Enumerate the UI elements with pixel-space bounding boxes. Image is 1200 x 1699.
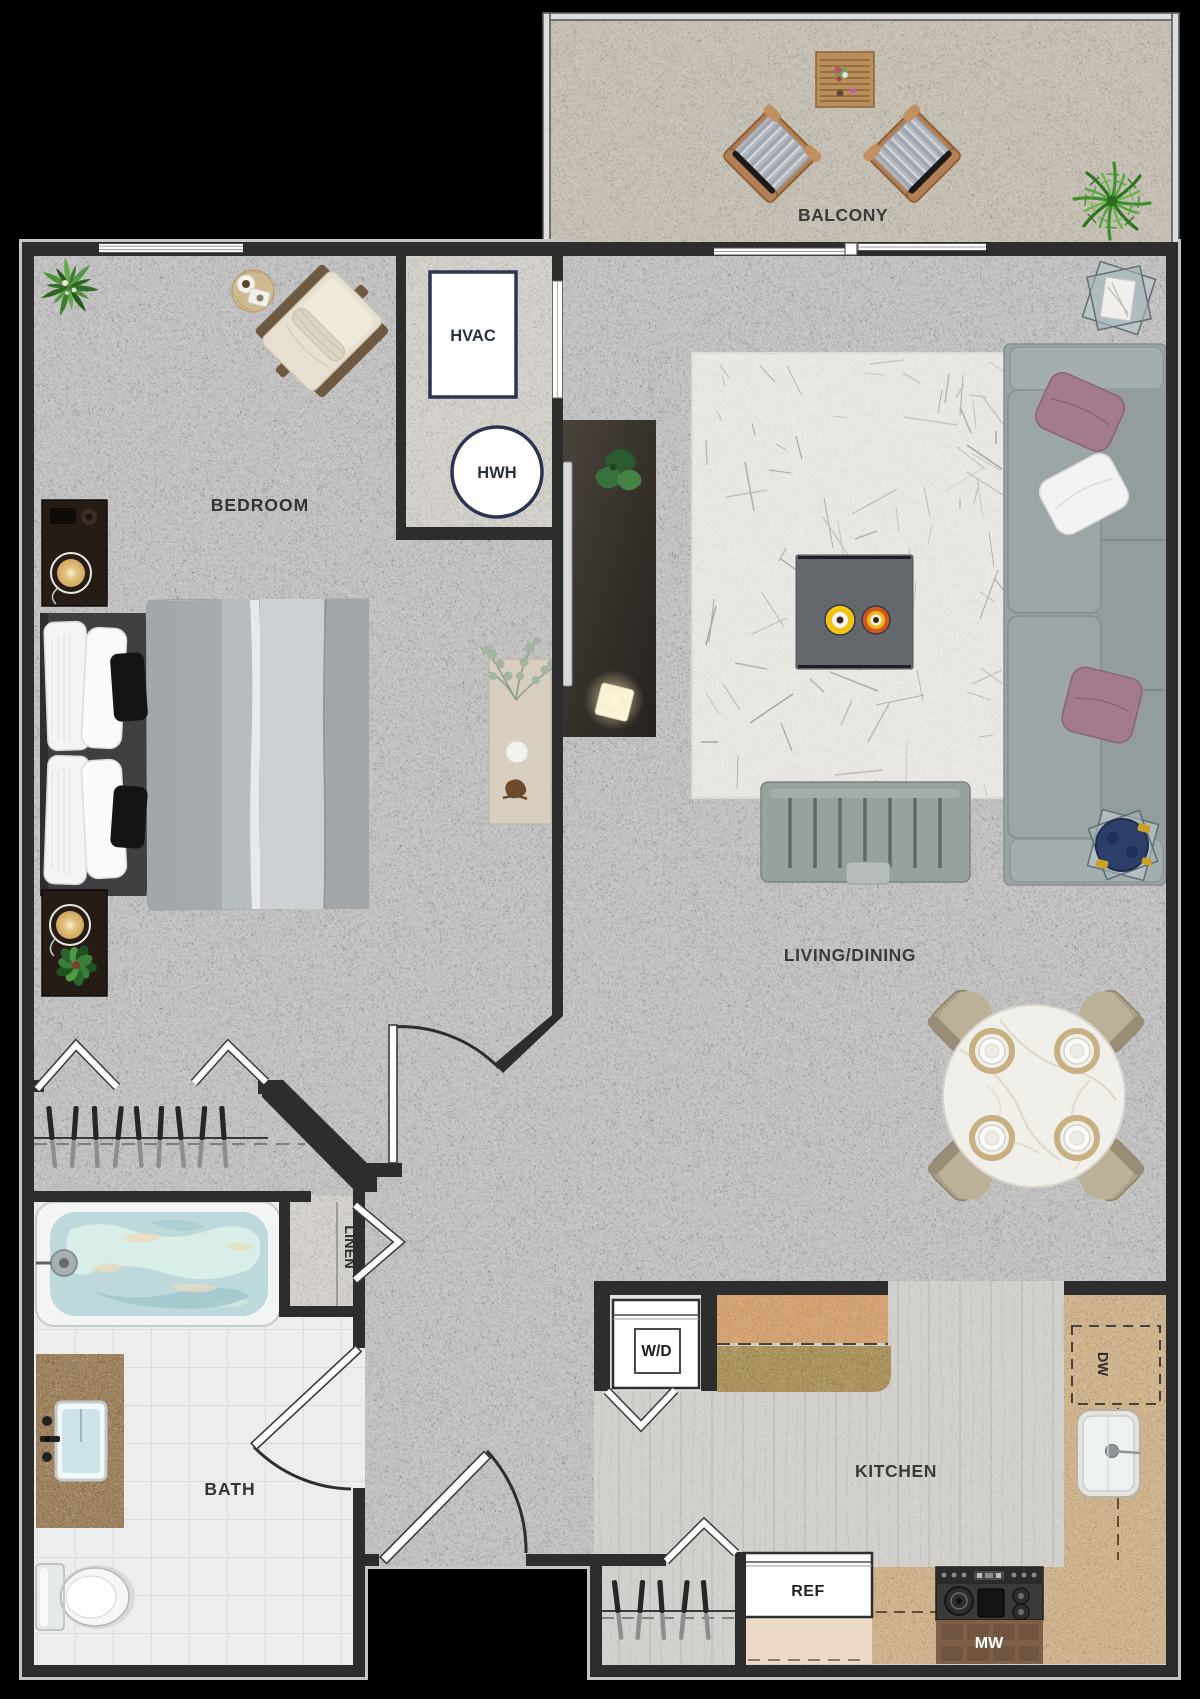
svg-text:W/D: W/D <box>641 1343 671 1360</box>
svg-text:HWH: HWH <box>477 464 516 482</box>
svg-text:HVAC: HVAC <box>450 327 496 345</box>
svg-text:KITCHEN: KITCHEN <box>855 1461 937 1481</box>
svg-text:BALCONY: BALCONY <box>798 205 888 225</box>
svg-text:BATH: BATH <box>204 1479 255 1499</box>
svg-text:BEDROOM: BEDROOM <box>211 495 309 515</box>
svg-text:MW: MW <box>975 1635 1004 1652</box>
svg-text:LIVING/DINING: LIVING/DINING <box>784 945 916 965</box>
svg-text:DW: DW <box>1094 1352 1110 1376</box>
svg-text:LINEN: LINEN <box>341 1225 357 1269</box>
svg-text:REF: REF <box>791 1583 825 1600</box>
